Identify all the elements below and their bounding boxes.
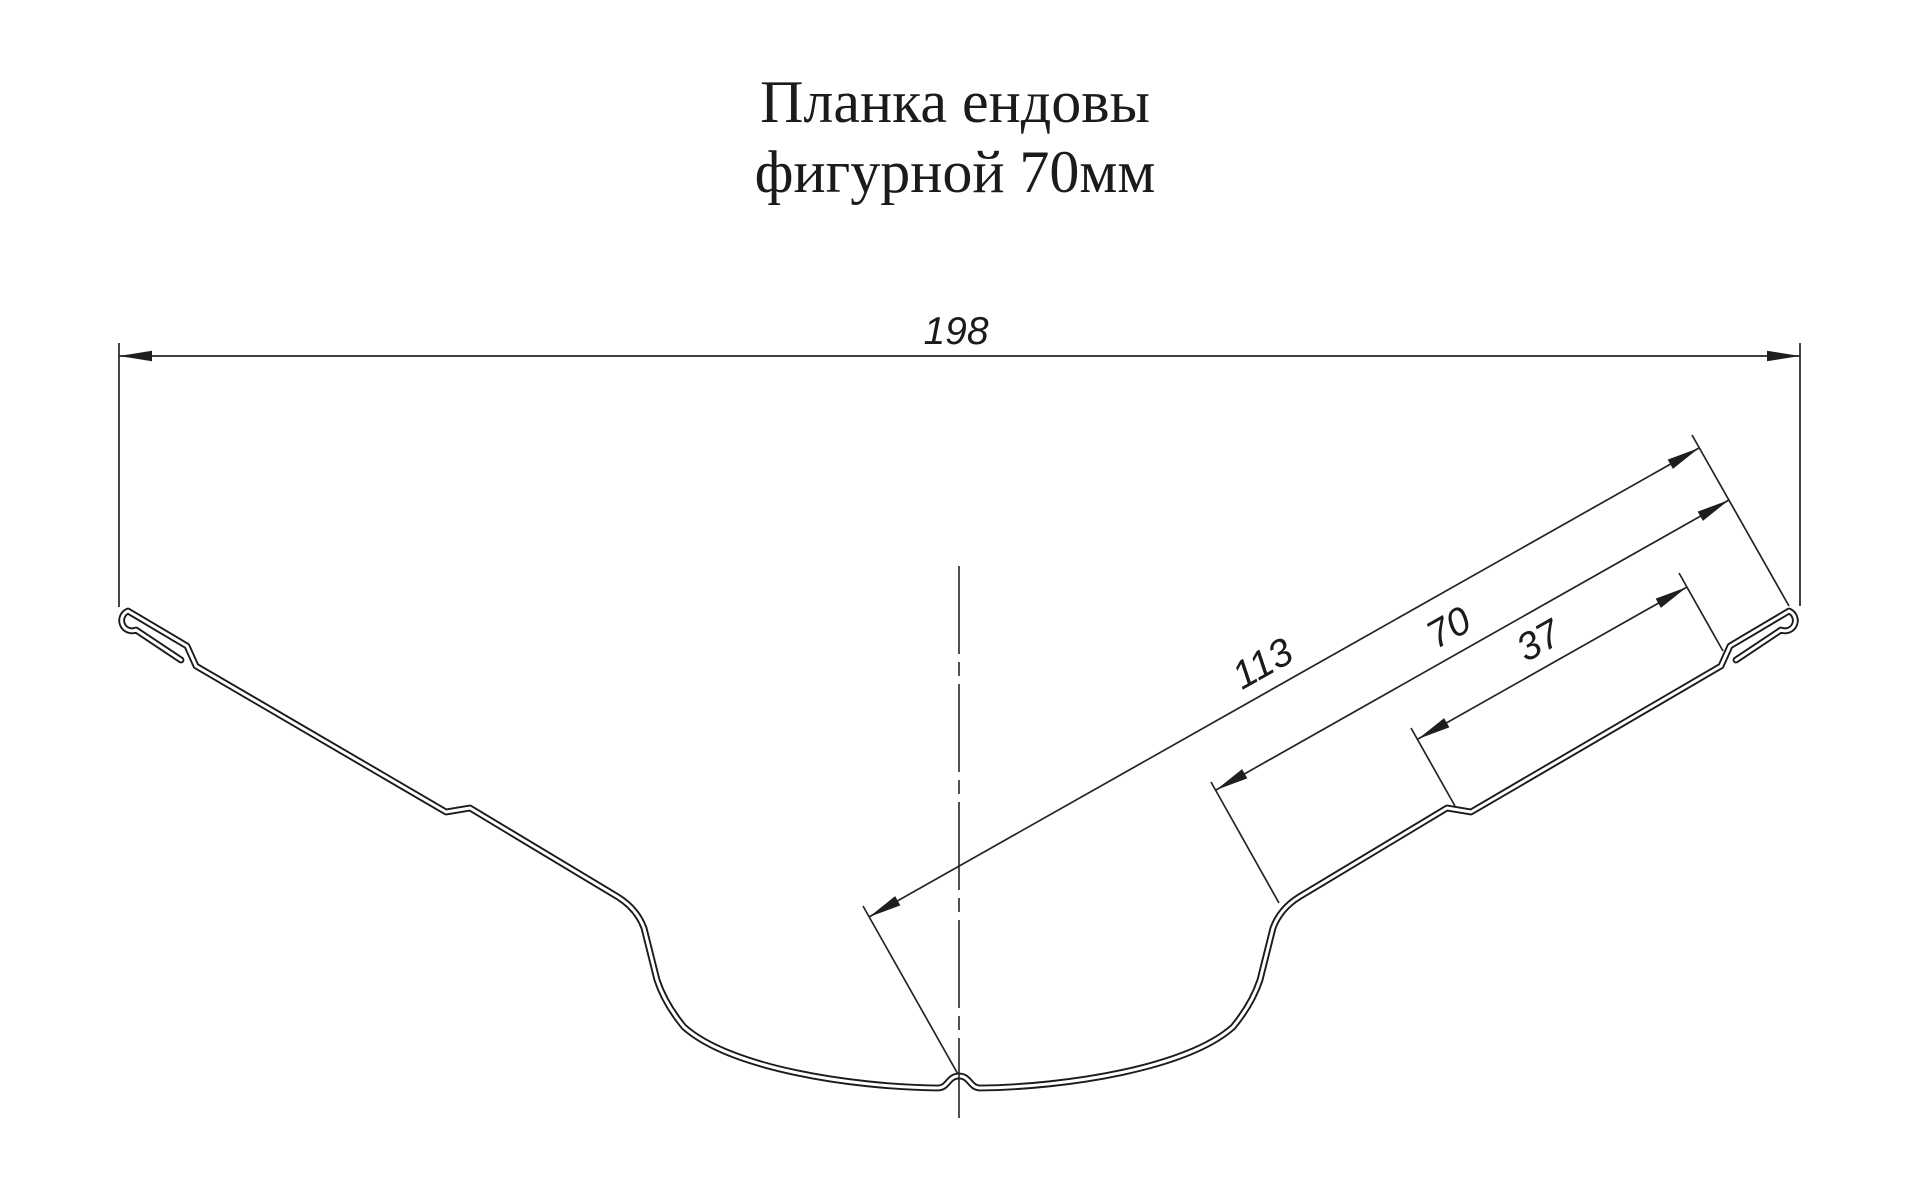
dim-37-arrow-right — [1656, 582, 1690, 607]
dim-37-extension-right — [1679, 573, 1723, 651]
dim-113-arrow-left — [866, 896, 900, 921]
dim-113-arrow-right — [1668, 443, 1702, 468]
dim-37-arrow-left — [1415, 718, 1449, 743]
dim-70-arrow-right — [1698, 495, 1732, 520]
dim-113-extension-left — [863, 906, 959, 1076]
drawing-title-line2: фигурной 70мм — [755, 139, 1156, 205]
drawing-title-line1: Планка ендовы — [760, 69, 1150, 135]
dim-70-line — [1216, 500, 1729, 790]
dim-198-arrow-right — [1767, 351, 1800, 362]
texts: Планка ендовы фигурной 70мм 198 113 70 3… — [755, 69, 1570, 698]
drawing-sheet: Планка ендовы фигурной 70мм 198 113 70 3… — [0, 0, 1920, 1200]
dimension-70-label: 70 — [1419, 599, 1478, 658]
dim-70-arrow-left — [1213, 769, 1247, 794]
dimension-113-label: 113 — [1225, 630, 1301, 698]
dim-113-line — [869, 448, 1699, 917]
dim-37-extension-left — [1411, 728, 1455, 806]
dim-right-shared-extension — [1692, 435, 1789, 606]
dimension-113 — [863, 443, 1702, 1076]
technical-drawing: Планка ендовы фигурной 70мм 198 113 70 3… — [0, 0, 1920, 1200]
dim-198-arrow-left — [119, 351, 152, 362]
dim-70-extension-left — [1211, 782, 1279, 903]
dimension-198-label: 198 — [923, 310, 988, 353]
